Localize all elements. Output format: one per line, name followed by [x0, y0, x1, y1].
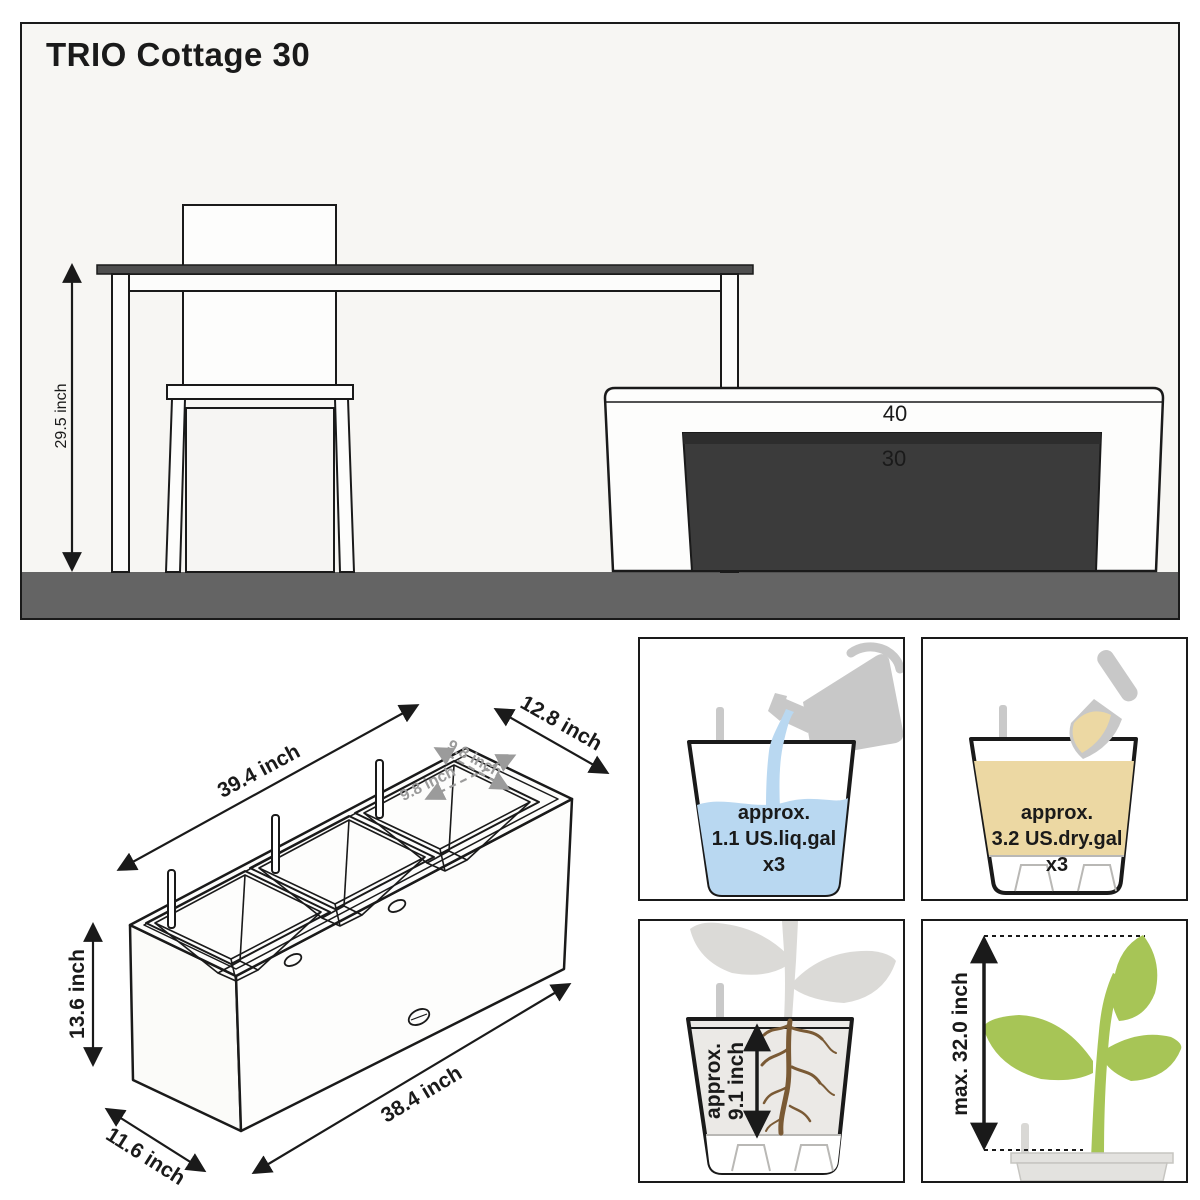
product-dimension-sheet: 29.5 inch 40 — [0, 0, 1200, 1200]
watering-can-icon — [768, 647, 903, 756]
planter-40-label: 40 — [883, 401, 907, 426]
table-apron — [129, 274, 721, 291]
water-line1: approx. — [738, 802, 810, 824]
planter-30-label: 30 — [882, 446, 906, 471]
soil-line3: x3 — [1046, 854, 1068, 876]
chair-backrest — [183, 205, 336, 388]
table-height-dimension: 29.5 inch — [53, 267, 72, 568]
isometric-dimension-drawing: 39.4 inch 12.8 inch 9.8 inch 9.8 inch 13… — [20, 630, 620, 1200]
dim-height: 13.6 inch — [66, 949, 89, 1039]
water-line2: 1.1 US.liq.gal — [712, 828, 836, 850]
max-height-label: max. 32.0 inch — [949, 972, 972, 1116]
planting-depth-box: approx. 9.1 inch — [638, 919, 905, 1183]
water-line3: x3 — [763, 854, 785, 876]
false-bottom-area — [706, 1135, 841, 1173]
room-scene-drawing: 29.5 inch 40 — [22, 24, 1178, 618]
room-scene-panel: 29.5 inch 40 — [20, 22, 1180, 620]
soil-line2: 3.2 US.dry.gal — [992, 828, 1123, 850]
planter-size-30: 30 — [683, 433, 1101, 571]
soil-line1: approx. — [1021, 802, 1093, 824]
water-capacity-box: approx. 1.1 US.liq.gal x3 — [638, 637, 905, 901]
chair-leg-right — [335, 399, 354, 572]
chair-seat — [167, 385, 353, 399]
seedling-icon — [983, 935, 1181, 1159]
soil-capacity-box: approx. 3.2 US.dry.gal x3 — [921, 637, 1188, 901]
chair-leg-left — [166, 399, 185, 572]
page-title: TRIO Cottage 30 — [46, 36, 310, 74]
planter-icon — [1011, 1153, 1173, 1181]
table-height-label: 29.5 inch — [53, 384, 70, 449]
tabletop — [97, 265, 753, 274]
depth-line2: 9.1 inch — [725, 1042, 748, 1120]
chair-frame — [186, 408, 334, 572]
depth-line1: approx. — [702, 1043, 725, 1119]
table-leg-left — [112, 274, 129, 572]
floor — [22, 572, 1178, 618]
max-plant-height-box: max. 32.0 inch — [921, 919, 1188, 1183]
